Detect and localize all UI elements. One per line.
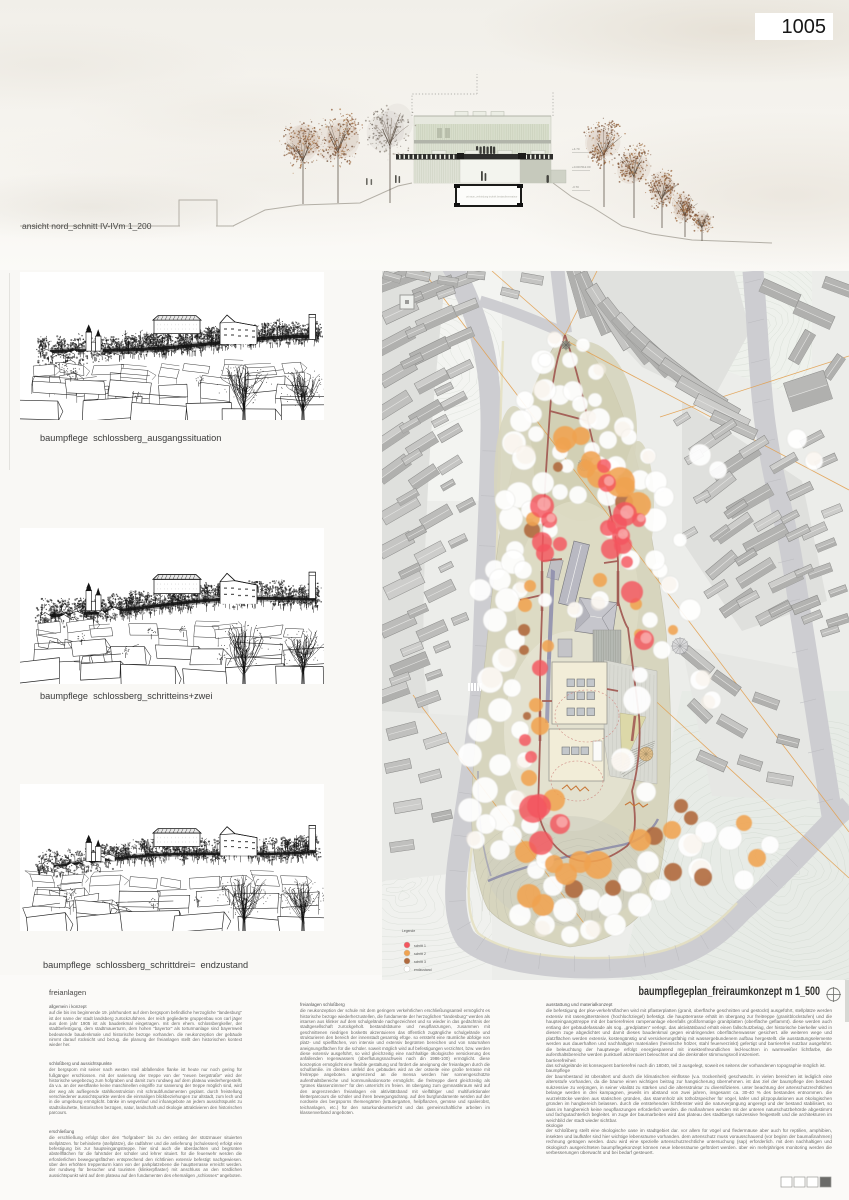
svg-text:+0.00=512.00: +0.00=512.00 (572, 165, 591, 169)
svg-text:-3.70: -3.70 (572, 185, 579, 189)
svg-text:schritt 2: schritt 2 (414, 952, 426, 956)
svg-text:schritt 1: schritt 1 (414, 944, 426, 948)
svg-text:+4.70: +4.70 (572, 147, 580, 151)
svg-text:Legende: Legende (402, 929, 415, 933)
svg-text:schritt 3: schritt 3 (414, 960, 426, 964)
svg-text:endzustand: endzustand (414, 968, 432, 972)
svg-text:ort raum_verbindung technik be: ort raum_verbindung technik bestandimens… (466, 196, 517, 199)
